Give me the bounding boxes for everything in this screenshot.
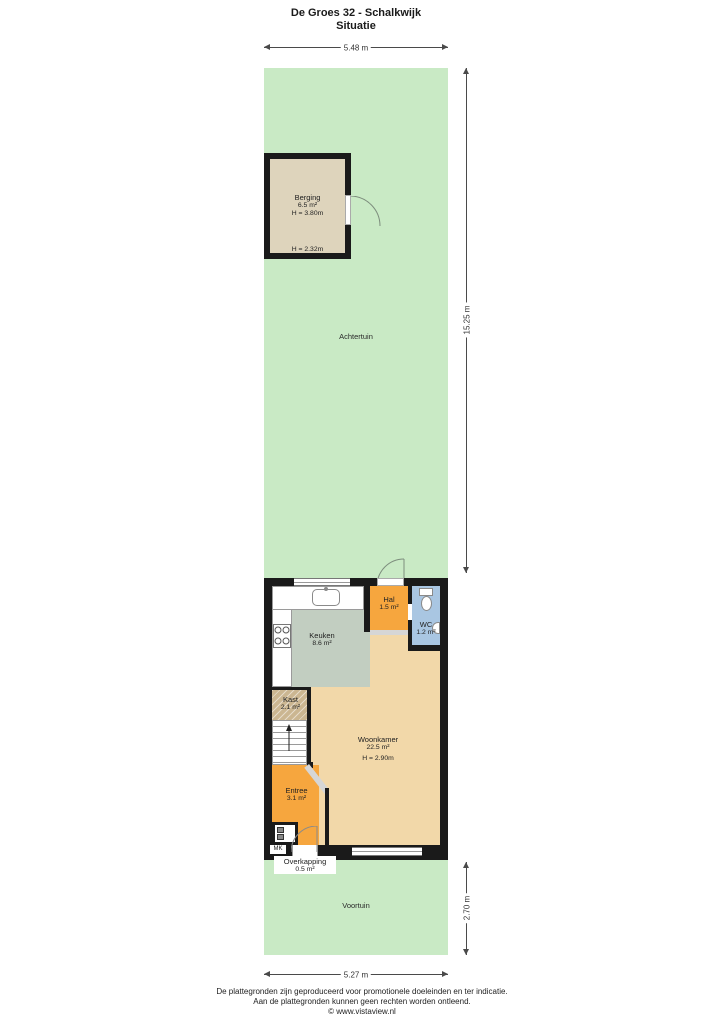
back-door-opening xyxy=(377,578,404,586)
front-door-swing-icon xyxy=(291,826,318,853)
hall-label: Hal 1.5 m² xyxy=(370,595,408,612)
shed-area: 6.5 m² xyxy=(264,202,351,210)
living-room-window xyxy=(352,847,422,856)
back-garden-label: Achtertuin xyxy=(264,332,448,341)
canopy-name: Overkapping xyxy=(274,857,336,866)
toilet-bowl-icon xyxy=(421,596,432,611)
wc-area: 1.2 m² xyxy=(412,629,440,637)
wc-name: WC xyxy=(412,620,440,629)
kitchen-label: Keuken 8.6 m² xyxy=(292,631,352,648)
wc-label: WC 1.2 m² xyxy=(412,620,440,637)
arrow-down-icon xyxy=(463,567,469,573)
entry-label: Entree 3.1 m² xyxy=(274,786,319,803)
dimension-bottom-label: 5.27 m xyxy=(341,971,371,980)
wall-entry-livingroom xyxy=(325,788,329,845)
closet-label: Kast 2.1 m² xyxy=(272,695,309,712)
shed-height: H = 3.80m xyxy=(264,210,351,218)
meter-icon xyxy=(277,827,284,833)
arrow-down-icon xyxy=(463,949,469,955)
footer-disclaimer-2: Aan de plattegronden kunnen geen rechten… xyxy=(0,997,724,1006)
arrow-left-icon xyxy=(264,44,270,50)
hall-name: Hal xyxy=(370,595,408,604)
shed-name: Berging xyxy=(264,193,351,202)
entry-area: 3.1 m² xyxy=(274,795,319,803)
house: MK Keuken 8.6 m² Hal 1.5 m² WC 1.2 m² Ka… xyxy=(264,578,448,860)
meter-closet-label: MK xyxy=(270,845,286,854)
living-room-height: H = 2.90m xyxy=(328,755,428,763)
wall-below-wc xyxy=(408,645,440,651)
shed-label: Berging 6.5 m² H = 3.80m xyxy=(264,193,351,218)
kitchen-window xyxy=(294,578,350,586)
situation-floorplan: De Groes 32 - Schalkwijk Situatie 5.48 m… xyxy=(0,0,724,1024)
hall-threshold xyxy=(370,630,408,635)
arrow-right-icon xyxy=(442,971,448,977)
closet-area: 2.1 m² xyxy=(272,704,309,712)
sink-icon xyxy=(312,589,340,606)
stairs-direction-arrow-icon xyxy=(284,724,294,752)
living-room-area: 22.5 m² xyxy=(328,744,428,752)
arrow-up-icon xyxy=(463,862,469,868)
closet-name: Kast xyxy=(272,695,309,704)
page-title: De Groes 32 - Schalkwijk xyxy=(0,7,712,19)
hall-area: 1.5 m² xyxy=(370,604,408,612)
kitchen-floor xyxy=(292,610,370,687)
footer-disclaimer-1: De plattegronden zijn geproduceerd voor … xyxy=(0,987,724,996)
stove-icon xyxy=(273,624,291,648)
shed-height-secondary: H = 2.32m xyxy=(264,246,351,254)
footer-credit: © www.vistaview.nl xyxy=(0,1007,724,1016)
dimension-right-lower-label: 2.70 m xyxy=(463,893,472,923)
canopy-label: Overkapping 0.5 m² xyxy=(274,856,336,874)
shed-door-swing-icon xyxy=(351,196,382,227)
faucet-icon xyxy=(324,587,328,591)
page-subtitle: Situatie xyxy=(0,20,712,32)
entry-name: Entree xyxy=(274,786,319,795)
front-garden-label: Voortuin xyxy=(264,901,448,910)
meter-icon xyxy=(277,834,284,840)
dimension-right-upper-label: 15.25 m xyxy=(463,303,472,338)
arrow-left-icon xyxy=(264,971,270,977)
arrow-up-icon xyxy=(463,68,469,74)
living-room-label: Woonkamer 22.5 m² H = 2.90m xyxy=(328,735,428,763)
arrow-right-icon xyxy=(442,44,448,50)
dimension-top-label: 5.48 m xyxy=(341,44,371,53)
toilet-tank-icon xyxy=(419,588,433,596)
kitchen-name: Keuken xyxy=(292,631,352,640)
canopy-area: 0.5 m² xyxy=(274,866,336,873)
kitchen-area: 8.6 m² xyxy=(292,640,352,648)
living-room-name: Woonkamer xyxy=(328,735,428,744)
